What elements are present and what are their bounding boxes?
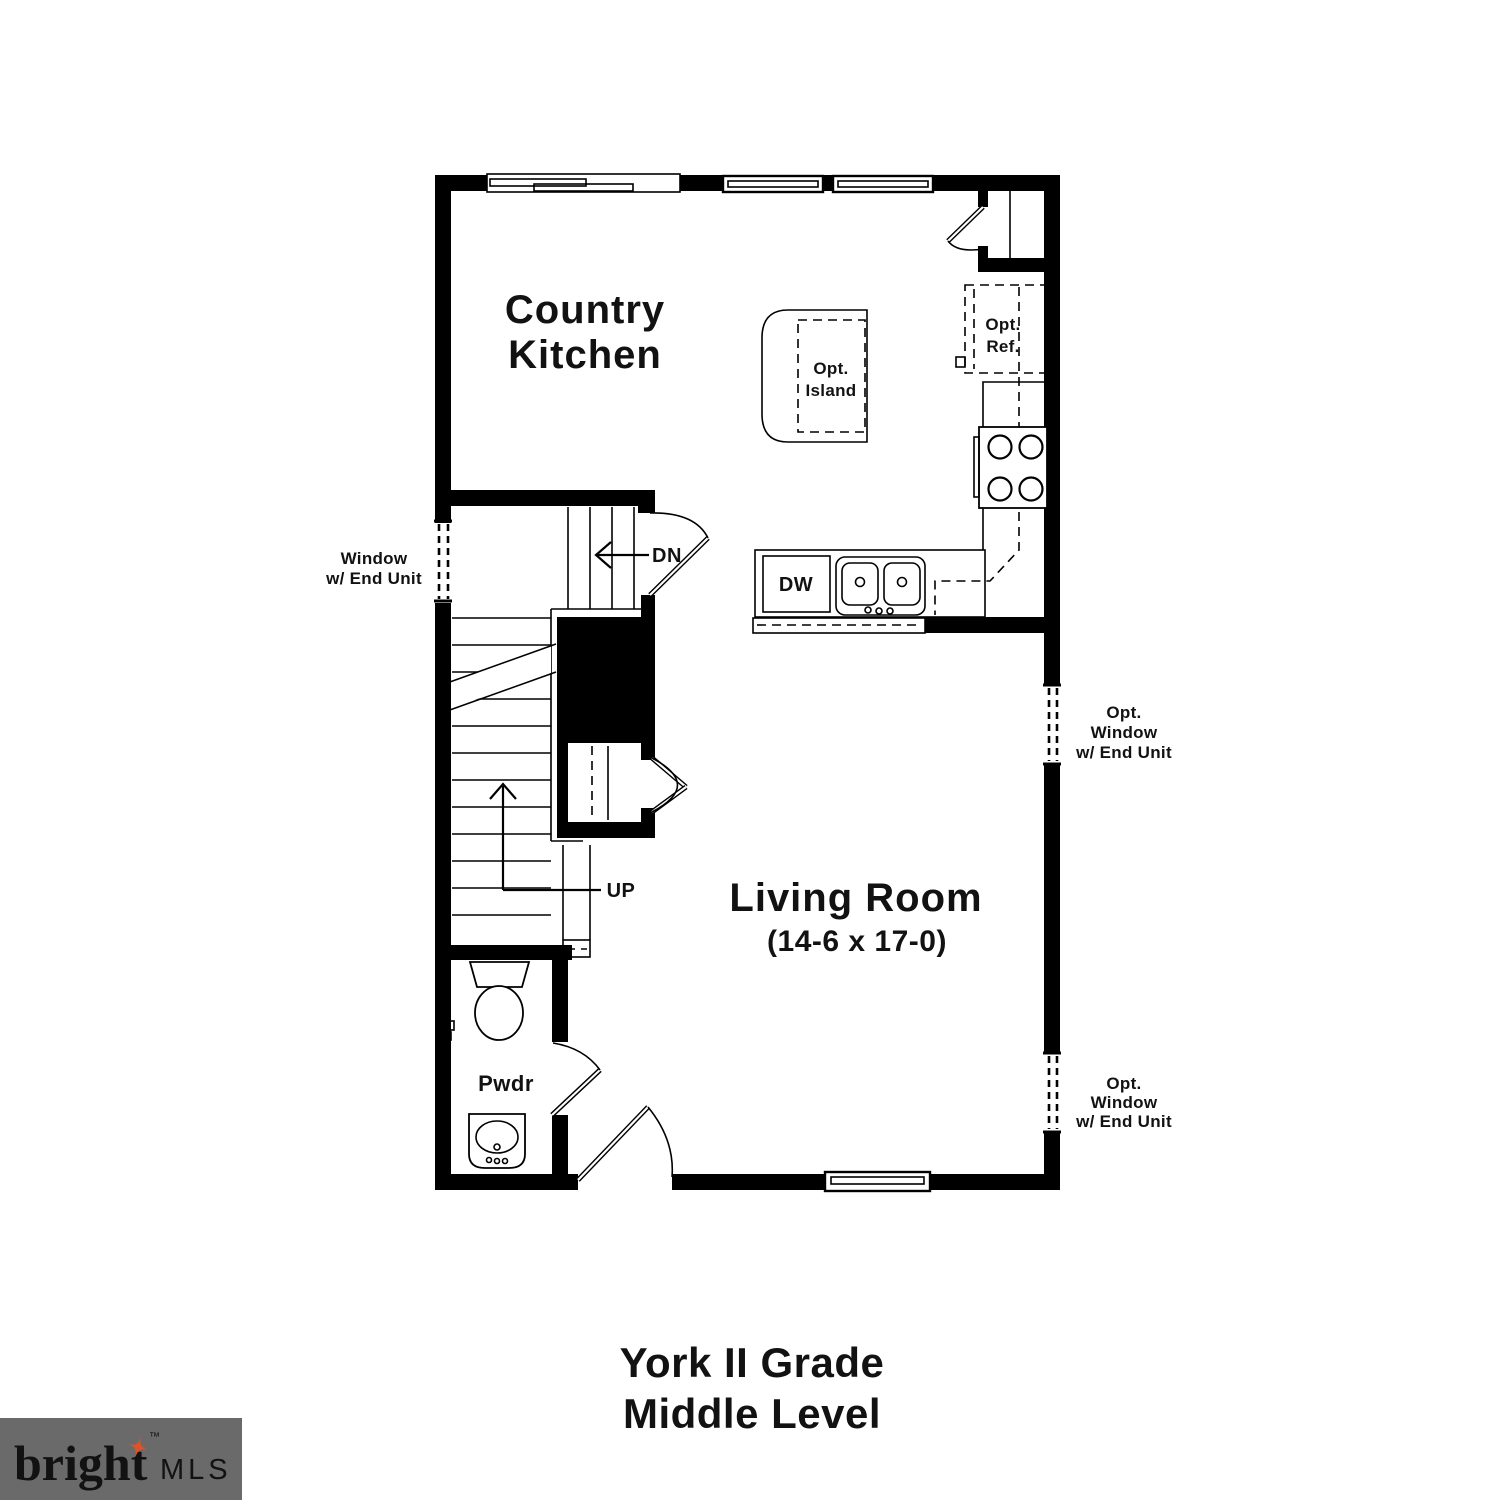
- stove: [974, 427, 1047, 508]
- logo-suffix-text: MLS: [160, 1454, 232, 1486]
- stairs-up-label: UP: [607, 880, 636, 902]
- right-lower-window-note-line3: w/ End Unit: [1075, 1112, 1172, 1131]
- sliding-window-top: [487, 174, 680, 192]
- stairs-down-label: DN: [652, 545, 682, 567]
- island-label-line1: Opt.: [813, 359, 848, 378]
- living-room-label: Living Room: [729, 876, 982, 920]
- kitchen-label-line1: Country: [505, 288, 665, 332]
- powder-room-label: Pwdr: [478, 1071, 534, 1096]
- plan-title: York II Grade Middle Level: [620, 1339, 885, 1437]
- right-upper-window-note-line3: w/ End Unit: [1075, 743, 1172, 762]
- dishwasher-label: DW: [779, 574, 813, 596]
- plan-title-line2: Middle Level: [623, 1390, 881, 1437]
- right-upper-window-note-line1: Opt.: [1106, 703, 1141, 722]
- floor-plan-page: Opt. Ref. Opt. Island DW: [0, 0, 1500, 1500]
- understair-closet-door: [652, 758, 686, 812]
- left-window-note-line2: w/ End Unit: [325, 569, 422, 588]
- logo-trademark: ™: [149, 1431, 160, 1443]
- kitchen-half-wall: [925, 617, 1060, 633]
- counter-ledge: [753, 618, 925, 633]
- window-top-1: [723, 176, 823, 192]
- front-door: [578, 1107, 672, 1180]
- stair-break-line: [447, 644, 556, 711]
- logo-brand-text: bright: [14, 1435, 148, 1491]
- right-upper-window-note-line2: Window: [1091, 723, 1158, 742]
- kitchen-label-line2: Kitchen: [508, 333, 662, 377]
- left-window-note-line1: Window: [341, 549, 408, 568]
- powder-sink: [469, 1114, 525, 1168]
- ref-label-line1: Opt.: [985, 315, 1020, 334]
- toilet: [470, 962, 529, 1040]
- refrigerator-opt: Opt. Ref.: [956, 285, 1045, 373]
- window-bottom: [825, 1172, 930, 1191]
- window-left-end-unit: [434, 521, 452, 601]
- living-room-dimensions: (14-6 x 17-0): [767, 925, 947, 958]
- stairs-down-arrow: DN: [596, 542, 682, 568]
- island-opt: Opt. Island: [762, 310, 867, 442]
- understair-closet: [592, 746, 686, 820]
- window-right-lower-opt: [1043, 1053, 1061, 1132]
- dishwasher: DW: [763, 556, 830, 612]
- right-lower-window-note-line2: Window: [1091, 1093, 1158, 1112]
- powder-door: [552, 1043, 600, 1115]
- plan-title-line1: York II Grade: [620, 1339, 885, 1386]
- right-lower-window-note-line1: Opt.: [1106, 1074, 1141, 1093]
- window-right-upper-opt: [1043, 685, 1061, 764]
- ref-label-line2: Ref.: [986, 337, 1019, 356]
- powder-room: Pwdr: [441, 962, 600, 1168]
- brightmls-logo: bright ™ MLS: [0, 1418, 242, 1500]
- window-top-2: [833, 176, 933, 192]
- stair-void: [557, 617, 655, 743]
- island-label-line2: Island: [806, 381, 857, 400]
- kitchen-sink: [836, 557, 925, 615]
- pantry-door: [948, 207, 983, 250]
